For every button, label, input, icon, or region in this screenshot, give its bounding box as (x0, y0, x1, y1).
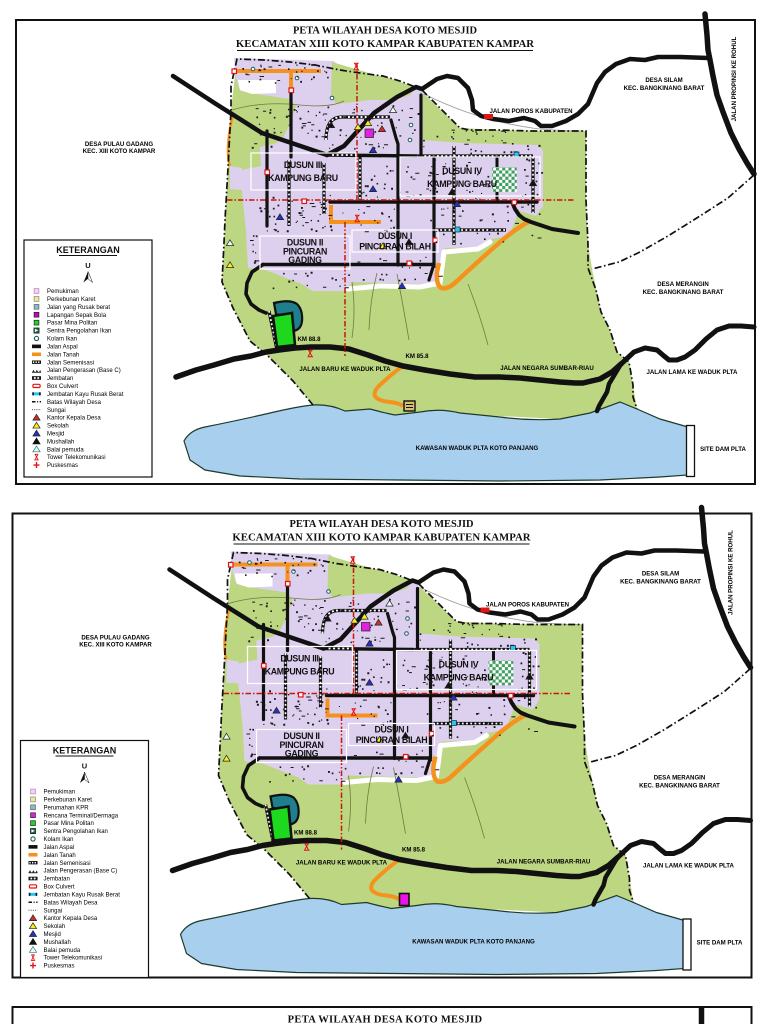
svg-text:Puskesmas: Puskesmas (47, 463, 78, 469)
svg-text:Jalan Aspal: Jalan Aspal (47, 344, 78, 350)
svg-text:Jalan Semenisasi: Jalan Semenisasi (47, 360, 94, 366)
svg-text:Perkebunan Karet: Perkebunan Karet (47, 297, 96, 303)
svg-text:PETA WILAYAH DESA KOTO MESJID: PETA WILAYAH DESA KOTO MESJID (288, 1015, 483, 1024)
svg-text:Jalan Semenisasi: Jalan Semenisasi (44, 861, 91, 867)
svg-text:Kolam Ikan: Kolam Ikan (44, 837, 74, 843)
svg-text:Jalan Pengerasan (Base C): Jalan Pengerasan (Base C) (47, 368, 121, 374)
svg-text:Kantor Kepala Desa: Kantor Kepala Desa (47, 416, 101, 422)
svg-text:Sungai: Sungai (44, 908, 63, 914)
svg-text:Mesjid: Mesjid (44, 932, 61, 938)
svg-text:Pasar Mina Politan: Pasar Mina Politan (47, 321, 97, 327)
svg-text:Sekolah: Sekolah (44, 924, 66, 930)
svg-text:Jalan Pengerasan (Base C): Jalan Pengerasan (Base C) (44, 869, 118, 875)
svg-text:Pemukiman: Pemukiman (47, 289, 79, 295)
svg-text:Tower Telekomunikasi: Tower Telekomunikasi (44, 956, 103, 962)
svg-text:Rencana Terminal/Dermaga: Rencana Terminal/Dermaga (44, 813, 119, 819)
svg-text:Lapangan Sepak Bola: Lapangan Sepak Bola (47, 313, 107, 319)
svg-text:Sentra Pengolahan Ikan: Sentra Pengolahan Ikan (47, 329, 111, 335)
svg-text:Pasar Mina Politan: Pasar Mina Politan (44, 821, 94, 827)
svg-text:Mushallah: Mushallah (47, 439, 74, 445)
svg-text:Batas Wilayah Desa: Batas Wilayah Desa (47, 400, 102, 406)
svg-text:Jalan yang Rusak berat: Jalan yang Rusak berat (47, 305, 110, 311)
svg-text:Balai pemuda: Balai pemuda (47, 447, 84, 453)
svg-text:Box Culvert: Box Culvert (44, 885, 75, 891)
svg-text:Perumahan KPR: Perumahan KPR (44, 805, 90, 811)
svg-text:Tower Telekomunikasi: Tower Telekomunikasi (47, 455, 106, 461)
svg-text:Puskesmas: Puskesmas (44, 964, 75, 970)
svg-text:Sungai: Sungai (47, 408, 66, 414)
svg-text:Perkebunan Karet: Perkebunan Karet (44, 798, 93, 804)
svg-text:Batas Wilayah Desa: Batas Wilayah Desa (44, 900, 99, 906)
svg-text:Mushallah: Mushallah (44, 940, 71, 946)
svg-text:Sekolah: Sekolah (47, 424, 69, 430)
svg-text:Jembatan Kayu Rusak Berat: Jembatan Kayu Rusak Berat (47, 392, 124, 398)
svg-text:Jembatan Kayu Rusak Berat: Jembatan Kayu Rusak Berat (44, 892, 121, 898)
svg-text:Jalan Tanah: Jalan Tanah (47, 352, 79, 358)
svg-text:Mesjid: Mesjid (47, 431, 64, 437)
svg-text:Kolam Ikan: Kolam Ikan (47, 337, 77, 343)
svg-text:Sentra Pengolahan Ikan: Sentra Pengolahan Ikan (44, 829, 108, 835)
svg-text:Kantor Kepala Desa: Kantor Kepala Desa (44, 916, 98, 922)
svg-text:Jalan Tanah: Jalan Tanah (44, 853, 76, 859)
svg-text:Balai pemuda: Balai pemuda (44, 948, 81, 954)
svg-text:Pemukiman: Pemukiman (44, 790, 76, 796)
svg-text:Jembatan: Jembatan (47, 376, 73, 382)
svg-text:Box Culvert: Box Culvert (47, 384, 78, 390)
svg-text:Jalan Aspal: Jalan Aspal (44, 845, 75, 851)
svg-text:Jembatan: Jembatan (44, 877, 70, 883)
